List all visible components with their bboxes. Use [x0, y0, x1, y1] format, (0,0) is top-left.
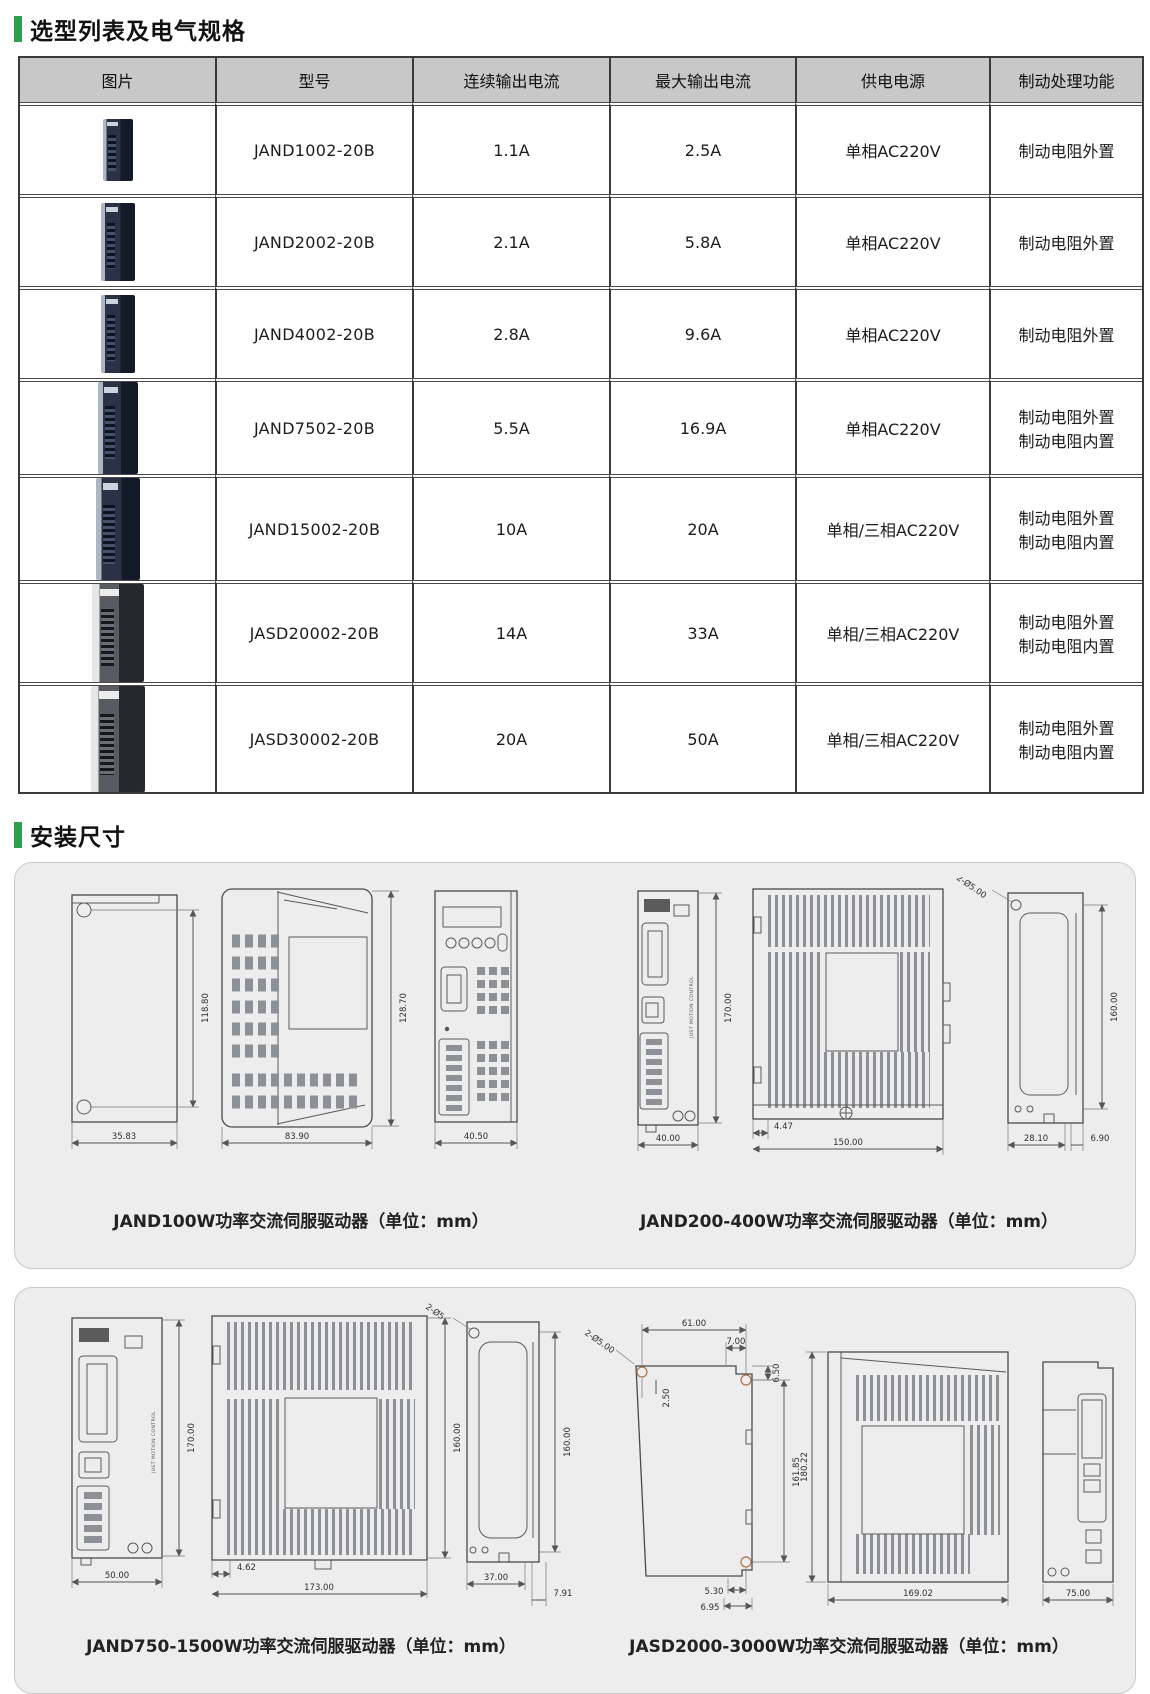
dimension-label: 170.00	[187, 1423, 197, 1453]
table-row: JAND7502-20B 5.5A 16.9A 单相AC220V 制动电阻外置 …	[20, 378, 1142, 474]
table-row: JAND15002-20B 10A 20A 单相/三相AC220V 制动电阻外置…	[20, 474, 1142, 580]
view-side-vented: 180.22 169.02	[800, 1352, 1008, 1606]
spec-table: 图片 型号 连续输出电流 最大输出电流 供电电源 制动处理功能 JAND1002…	[18, 56, 1144, 794]
max-current-cell: 9.6A	[609, 286, 795, 378]
dimension-label: 7.91	[554, 1589, 572, 1599]
max-current-cell: 20A	[609, 474, 795, 580]
section-accent-bar	[14, 16, 22, 42]
dimension-label: 170.00	[724, 993, 734, 1023]
dimension-label: 180.22	[800, 1452, 810, 1482]
section-title-installation: 安装尺寸	[14, 818, 1150, 852]
brake-cell: 制动电阻外置	[989, 286, 1142, 378]
table-row: JASD20002-20B 14A 33A 单相/三相AC220V 制动电阻外置…	[20, 580, 1142, 682]
dimension-label: 61.00	[682, 1319, 706, 1329]
header-model: 型号	[215, 58, 412, 102]
product-image	[101, 295, 135, 373]
dimension-label: 40.50	[464, 1132, 488, 1142]
max-current-cell: 2.5A	[609, 102, 795, 194]
dimension-label: 83.90	[285, 1132, 309, 1142]
power-supply-cell: 单相AC220V	[795, 378, 989, 474]
max-current-cell: 33A	[609, 580, 795, 682]
brake-cell: 制动电阻外置	[989, 102, 1142, 194]
dimension-label: 128.70	[399, 993, 409, 1023]
continuous-current-cell: 2.8A	[412, 286, 609, 378]
view-back-mount: 2-Ø5 160.00 37.00 7.91	[423, 1302, 572, 1606]
power-supply-cell: 单相/三相AC220V	[795, 580, 989, 682]
continuous-current-cell: 10A	[412, 474, 609, 580]
model-cell: JAND4002-20B	[215, 286, 412, 378]
dimension-label: 40.00	[656, 1134, 680, 1144]
drawing-jasd2000-3000w: 2-Ø5.00 61.00 7.00 6.50 2.50 161.85	[578, 1302, 1123, 1614]
dimension-label: 118.80	[201, 993, 211, 1023]
dimension-label: 35.83	[112, 1132, 136, 1142]
brake-cell: 制动电阻外置	[989, 194, 1142, 286]
dimension-label: 160.00	[1110, 992, 1120, 1022]
dimension-label: 5.30	[705, 1587, 724, 1597]
continuous-current-cell: 1.1A	[412, 102, 609, 194]
caption-jand750-1500w: JAND750-1500W功率交流伺服驱动器（单位：mm）	[27, 1632, 575, 1657]
max-current-cell: 5.8A	[609, 194, 795, 286]
table-row: JASD30002-20B 20A 50A 单相/三相AC220V 制动电阻外置…	[20, 682, 1142, 792]
view-front: JUST MOTION CONTROL 170.00 40.00	[638, 891, 734, 1151]
product-image	[91, 686, 145, 792]
dimension-label: 4.62	[237, 1563, 256, 1573]
brake-cell: 制动电阻外置 制动电阻内置	[989, 474, 1142, 580]
caption-jand100w: JAND100W功率交流伺服驱动器（单位：mm）	[27, 1207, 575, 1232]
drawing-jand100w: 118.80 35.83	[27, 877, 572, 1189]
drawing-jand750-1500w: JUST MOTION CONTROL 170.00 50.00	[27, 1302, 572, 1614]
section-title-text: 选型列表及电气规格	[30, 12, 246, 46]
view-front: 75.00	[1043, 1362, 1113, 1606]
caption-jand200-400w: JAND200-400W功率交流伺服驱动器（单位：mm）	[575, 1207, 1123, 1232]
power-supply-cell: 单相AC220V	[795, 102, 989, 194]
view-front: 40.50	[435, 891, 517, 1149]
dimension-label: 2-Ø5.00	[954, 877, 988, 901]
view-side-bracket: 118.80 35.83	[72, 895, 211, 1149]
view-side-vented: 4.47 150.00	[753, 889, 950, 1155]
product-image	[103, 119, 133, 181]
continuous-current-cell: 14A	[412, 580, 609, 682]
dimension-label: 6.50	[772, 1364, 782, 1383]
header-power-supply: 供电电源	[795, 58, 989, 102]
dimension-label: 173.00	[304, 1583, 334, 1593]
dimension-label: 4.47	[774, 1122, 793, 1132]
dimension-label: 169.02	[903, 1589, 933, 1599]
dimension-panel-2: JUST MOTION CONTROL 170.00 50.00	[14, 1287, 1136, 1694]
product-image	[101, 203, 135, 281]
model-cell: JAND15002-20B	[215, 474, 412, 580]
max-current-cell: 50A	[609, 682, 795, 792]
dimension-label: 6.95	[701, 1603, 720, 1613]
table-row: JAND2002-20B 2.1A 5.8A 单相AC220V 制动电阻外置	[20, 194, 1142, 286]
section-title-selection: 选型列表及电气规格	[14, 12, 1150, 46]
model-cell: JAND2002-20B	[215, 194, 412, 286]
view-back-mount: 2-Ø5.00 160.00 28.10 6.90	[954, 877, 1120, 1151]
table-row: JAND4002-20B 2.8A 9.6A 单相AC220V 制动电阻外置	[20, 286, 1142, 378]
model-cell: JASD30002-20B	[215, 682, 412, 792]
table-header-row: 图片 型号 连续输出电流 最大输出电流 供电电源 制动处理功能	[20, 58, 1142, 102]
product-image	[98, 382, 138, 474]
table-row: JAND1002-20B 1.1A 2.5A 单相AC220V 制动电阻外置	[20, 102, 1142, 194]
power-supply-cell: 单相AC220V	[795, 286, 989, 378]
caption-jasd2000-3000w: JASD2000-3000W功率交流伺服驱动器（单位：mm）	[575, 1632, 1123, 1657]
brand-text: JUST MOTION CONTROL	[689, 976, 695, 1039]
model-cell: JAND1002-20B	[215, 102, 412, 194]
max-current-cell: 16.9A	[609, 378, 795, 474]
model-cell: JAND7502-20B	[215, 378, 412, 474]
header-max-current: 最大输出电流	[609, 58, 795, 102]
brake-cell: 制动电阻外置 制动电阻内置	[989, 580, 1142, 682]
view-mount-plate: 2-Ø5.00 61.00 7.00 6.50 2.50 161.85	[582, 1319, 802, 1613]
power-supply-cell: 单相/三相AC220V	[795, 474, 989, 580]
brand-text: JUST MOTION CONTROL	[151, 1411, 157, 1474]
view-side-vented: 160.00 4.62 173.00	[212, 1316, 463, 1598]
dimension-label: 50.00	[105, 1571, 129, 1581]
drawing-jand200-400w: JUST MOTION CONTROL 170.00 40.00	[578, 877, 1123, 1189]
view-front: JUST MOTION CONTROL 170.00 50.00	[72, 1318, 197, 1588]
dimension-label: 160.00	[563, 1427, 572, 1457]
product-image	[92, 584, 144, 682]
section-accent-bar	[14, 822, 22, 848]
brake-cell: 制动电阻外置 制动电阻内置	[989, 378, 1142, 474]
model-cell: JASD20002-20B	[215, 580, 412, 682]
dimension-label: 7.00	[727, 1337, 746, 1347]
header-continuous-current: 连续输出电流	[412, 58, 609, 102]
continuous-current-cell: 2.1A	[412, 194, 609, 286]
brake-cell: 制动电阻外置 制动电阻内置	[989, 682, 1142, 792]
dimension-label: 75.00	[1066, 1589, 1090, 1599]
power-supply-cell: 单相AC220V	[795, 194, 989, 286]
dimension-label: 6.90	[1091, 1134, 1110, 1144]
section-title-text: 安装尺寸	[30, 818, 126, 852]
product-image	[96, 478, 140, 580]
dimension-label: 28.10	[1024, 1134, 1048, 1144]
view-side-vented: 128.70 83.90	[222, 889, 409, 1149]
power-supply-cell: 单相/三相AC220V	[795, 682, 989, 792]
continuous-current-cell: 20A	[412, 682, 609, 792]
dimension-label: 160.00	[453, 1423, 463, 1453]
dimension-panel-1: 118.80 35.83	[14, 862, 1136, 1269]
dimension-label: 37.00	[484, 1573, 508, 1583]
dimension-label: 150.00	[833, 1138, 863, 1148]
dimension-label: 2-Ø5.00	[582, 1327, 616, 1356]
continuous-current-cell: 5.5A	[412, 378, 609, 474]
dimension-label: 2.50	[662, 1389, 672, 1408]
header-image: 图片	[20, 58, 215, 102]
header-brake-function: 制动处理功能	[989, 58, 1142, 102]
